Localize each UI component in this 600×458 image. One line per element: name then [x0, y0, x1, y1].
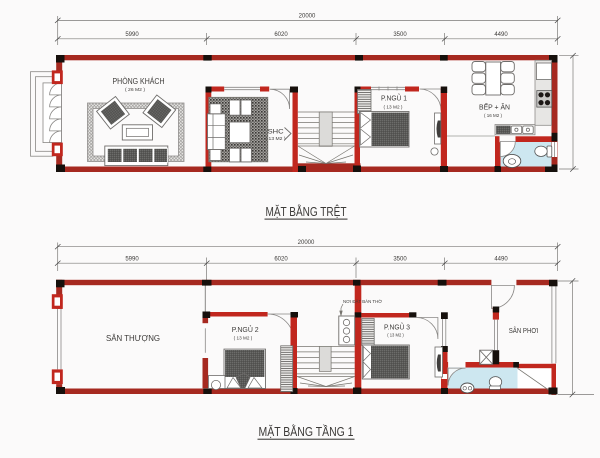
- svg-text:P.NGỦ 1: P.NGỦ 1: [381, 94, 407, 103]
- svg-text:3500: 3500: [393, 32, 407, 38]
- svg-text:P.NGỦ 3: P.NGỦ 3: [384, 323, 410, 332]
- svg-text:( 13 M2 ): ( 13 M2 ): [234, 336, 253, 341]
- svg-text:5990: 5990: [125, 257, 139, 263]
- svg-text:5990: 5990: [125, 32, 139, 38]
- svg-text:SÂN THƯỢNG: SÂN THƯỢNG: [106, 333, 160, 343]
- svg-text:SÂN PHƠI: SÂN PHƠI: [509, 326, 539, 335]
- svg-text:MẶT BẰNG TRỆT: MẶT BẰNG TRỆT: [266, 204, 347, 219]
- svg-text:3500: 3500: [393, 257, 407, 263]
- svg-text:4490: 4490: [494, 257, 508, 263]
- svg-text:SHC: SHC: [268, 129, 284, 136]
- svg-text:P.NGỦ 2: P.NGỦ 2: [232, 325, 259, 334]
- svg-text:( 16 M2 ): ( 16 M2 ): [484, 113, 502, 118]
- svg-text:NƠI ĐẶT BÀN THỜ: NƠI ĐẶT BÀN THỜ: [343, 298, 382, 304]
- svg-text:( 13 M2 ): ( 13 M2 ): [266, 136, 287, 141]
- svg-text:6020: 6020: [274, 257, 288, 263]
- svg-text:20000: 20000: [299, 14, 316, 20]
- svg-text:( 13 M2 ): ( 13 M2 ): [387, 333, 404, 338]
- svg-text:6020: 6020: [274, 32, 288, 38]
- svg-text:MẶT BẰNG TẦNG 1: MẶT BẰNG TẦNG 1: [259, 424, 354, 439]
- svg-text:( 13 M2 ): ( 13 M2 ): [384, 104, 403, 109]
- svg-text:20000: 20000: [298, 240, 315, 246]
- svg-text:( 26 M2 ): ( 26 M2 ): [125, 87, 145, 92]
- svg-text:4490: 4490: [494, 32, 508, 38]
- svg-text:BẾP + ĂN: BẾP + ĂN: [479, 102, 510, 112]
- svg-text:PHÒNG KHÁCH: PHÒNG KHÁCH: [113, 76, 165, 86]
